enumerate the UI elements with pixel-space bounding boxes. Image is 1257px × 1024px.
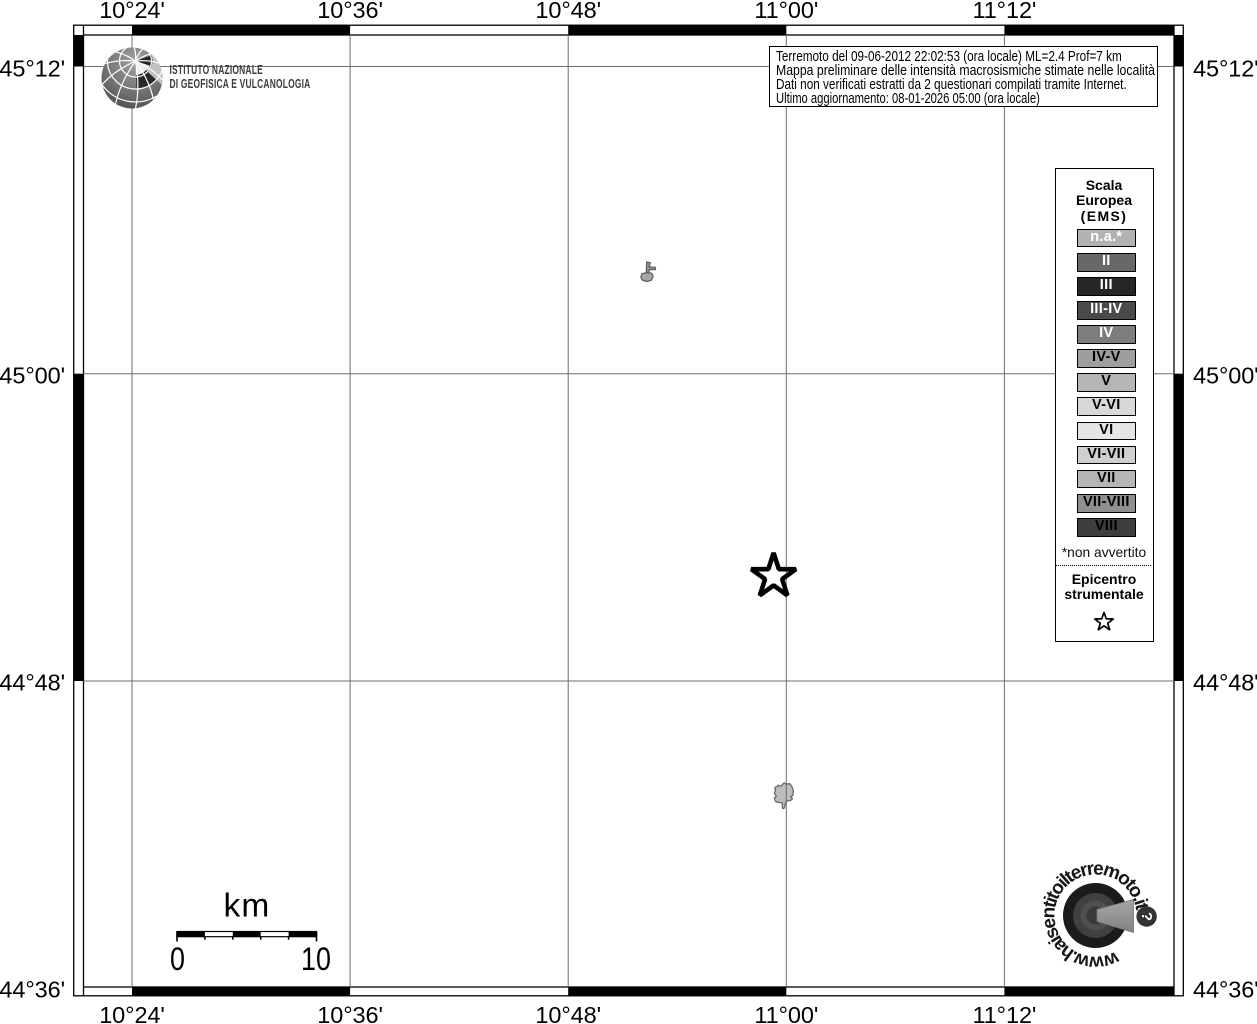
svg-text:10: 10 [301,942,331,978]
svg-text:?: ? [1138,912,1155,921]
svg-text:km: km [223,888,270,925]
svg-text:DI GEOFISICA E VULCANOLOGIA: DI GEOFISICA E VULCANOLOGIA [170,77,311,91]
svg-text:ISTITUTO NAZIONALE: ISTITUTO NAZIONALE [170,63,263,77]
svg-text:0: 0 [170,942,185,978]
